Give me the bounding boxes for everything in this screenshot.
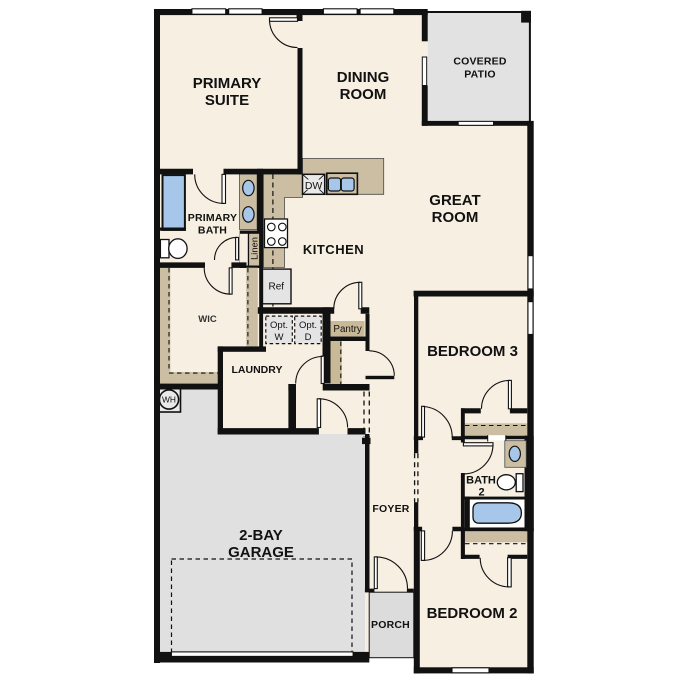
svg-text:WH: WH xyxy=(162,395,176,405)
svg-text:Opt.: Opt. xyxy=(270,320,288,331)
svg-text:BEDROOM 2: BEDROOM 2 xyxy=(427,605,518,622)
svg-text:COVERED: COVERED xyxy=(453,56,507,68)
svg-text:DINING: DINING xyxy=(337,69,390,86)
svg-text:D: D xyxy=(305,332,312,343)
svg-text:Linen: Linen xyxy=(249,237,259,260)
svg-text:2-BAY: 2-BAY xyxy=(239,527,283,544)
svg-text:BEDROOM 3: BEDROOM 3 xyxy=(427,343,518,360)
svg-text:FOYER: FOYER xyxy=(372,503,409,515)
svg-text:PRIMARY: PRIMARY xyxy=(188,212,237,224)
svg-text:Opt.: Opt. xyxy=(299,320,317,331)
svg-text:ROOM: ROOM xyxy=(340,86,387,103)
svg-text:BATH: BATH xyxy=(466,475,496,487)
svg-text:WIC: WIC xyxy=(198,314,217,325)
svg-text:DW: DW xyxy=(305,180,323,192)
svg-text:W: W xyxy=(275,332,284,343)
svg-text:BATH: BATH xyxy=(198,225,227,237)
svg-text:Pantry: Pantry xyxy=(333,324,361,335)
svg-text:PRIMARY: PRIMARY xyxy=(193,75,262,92)
svg-text:ROOM: ROOM xyxy=(432,209,479,226)
svg-text:LAUNDRY: LAUNDRY xyxy=(232,364,283,376)
svg-text:SUITE: SUITE xyxy=(205,92,249,109)
svg-text:2: 2 xyxy=(478,486,484,498)
svg-text:PATIO: PATIO xyxy=(464,69,496,81)
svg-text:GARAGE: GARAGE xyxy=(228,544,294,561)
svg-text:KITCHEN: KITCHEN xyxy=(303,242,364,257)
svg-text:PORCH: PORCH xyxy=(371,619,410,631)
svg-text:Ref: Ref xyxy=(269,282,285,293)
svg-text:GREAT: GREAT xyxy=(429,192,480,209)
